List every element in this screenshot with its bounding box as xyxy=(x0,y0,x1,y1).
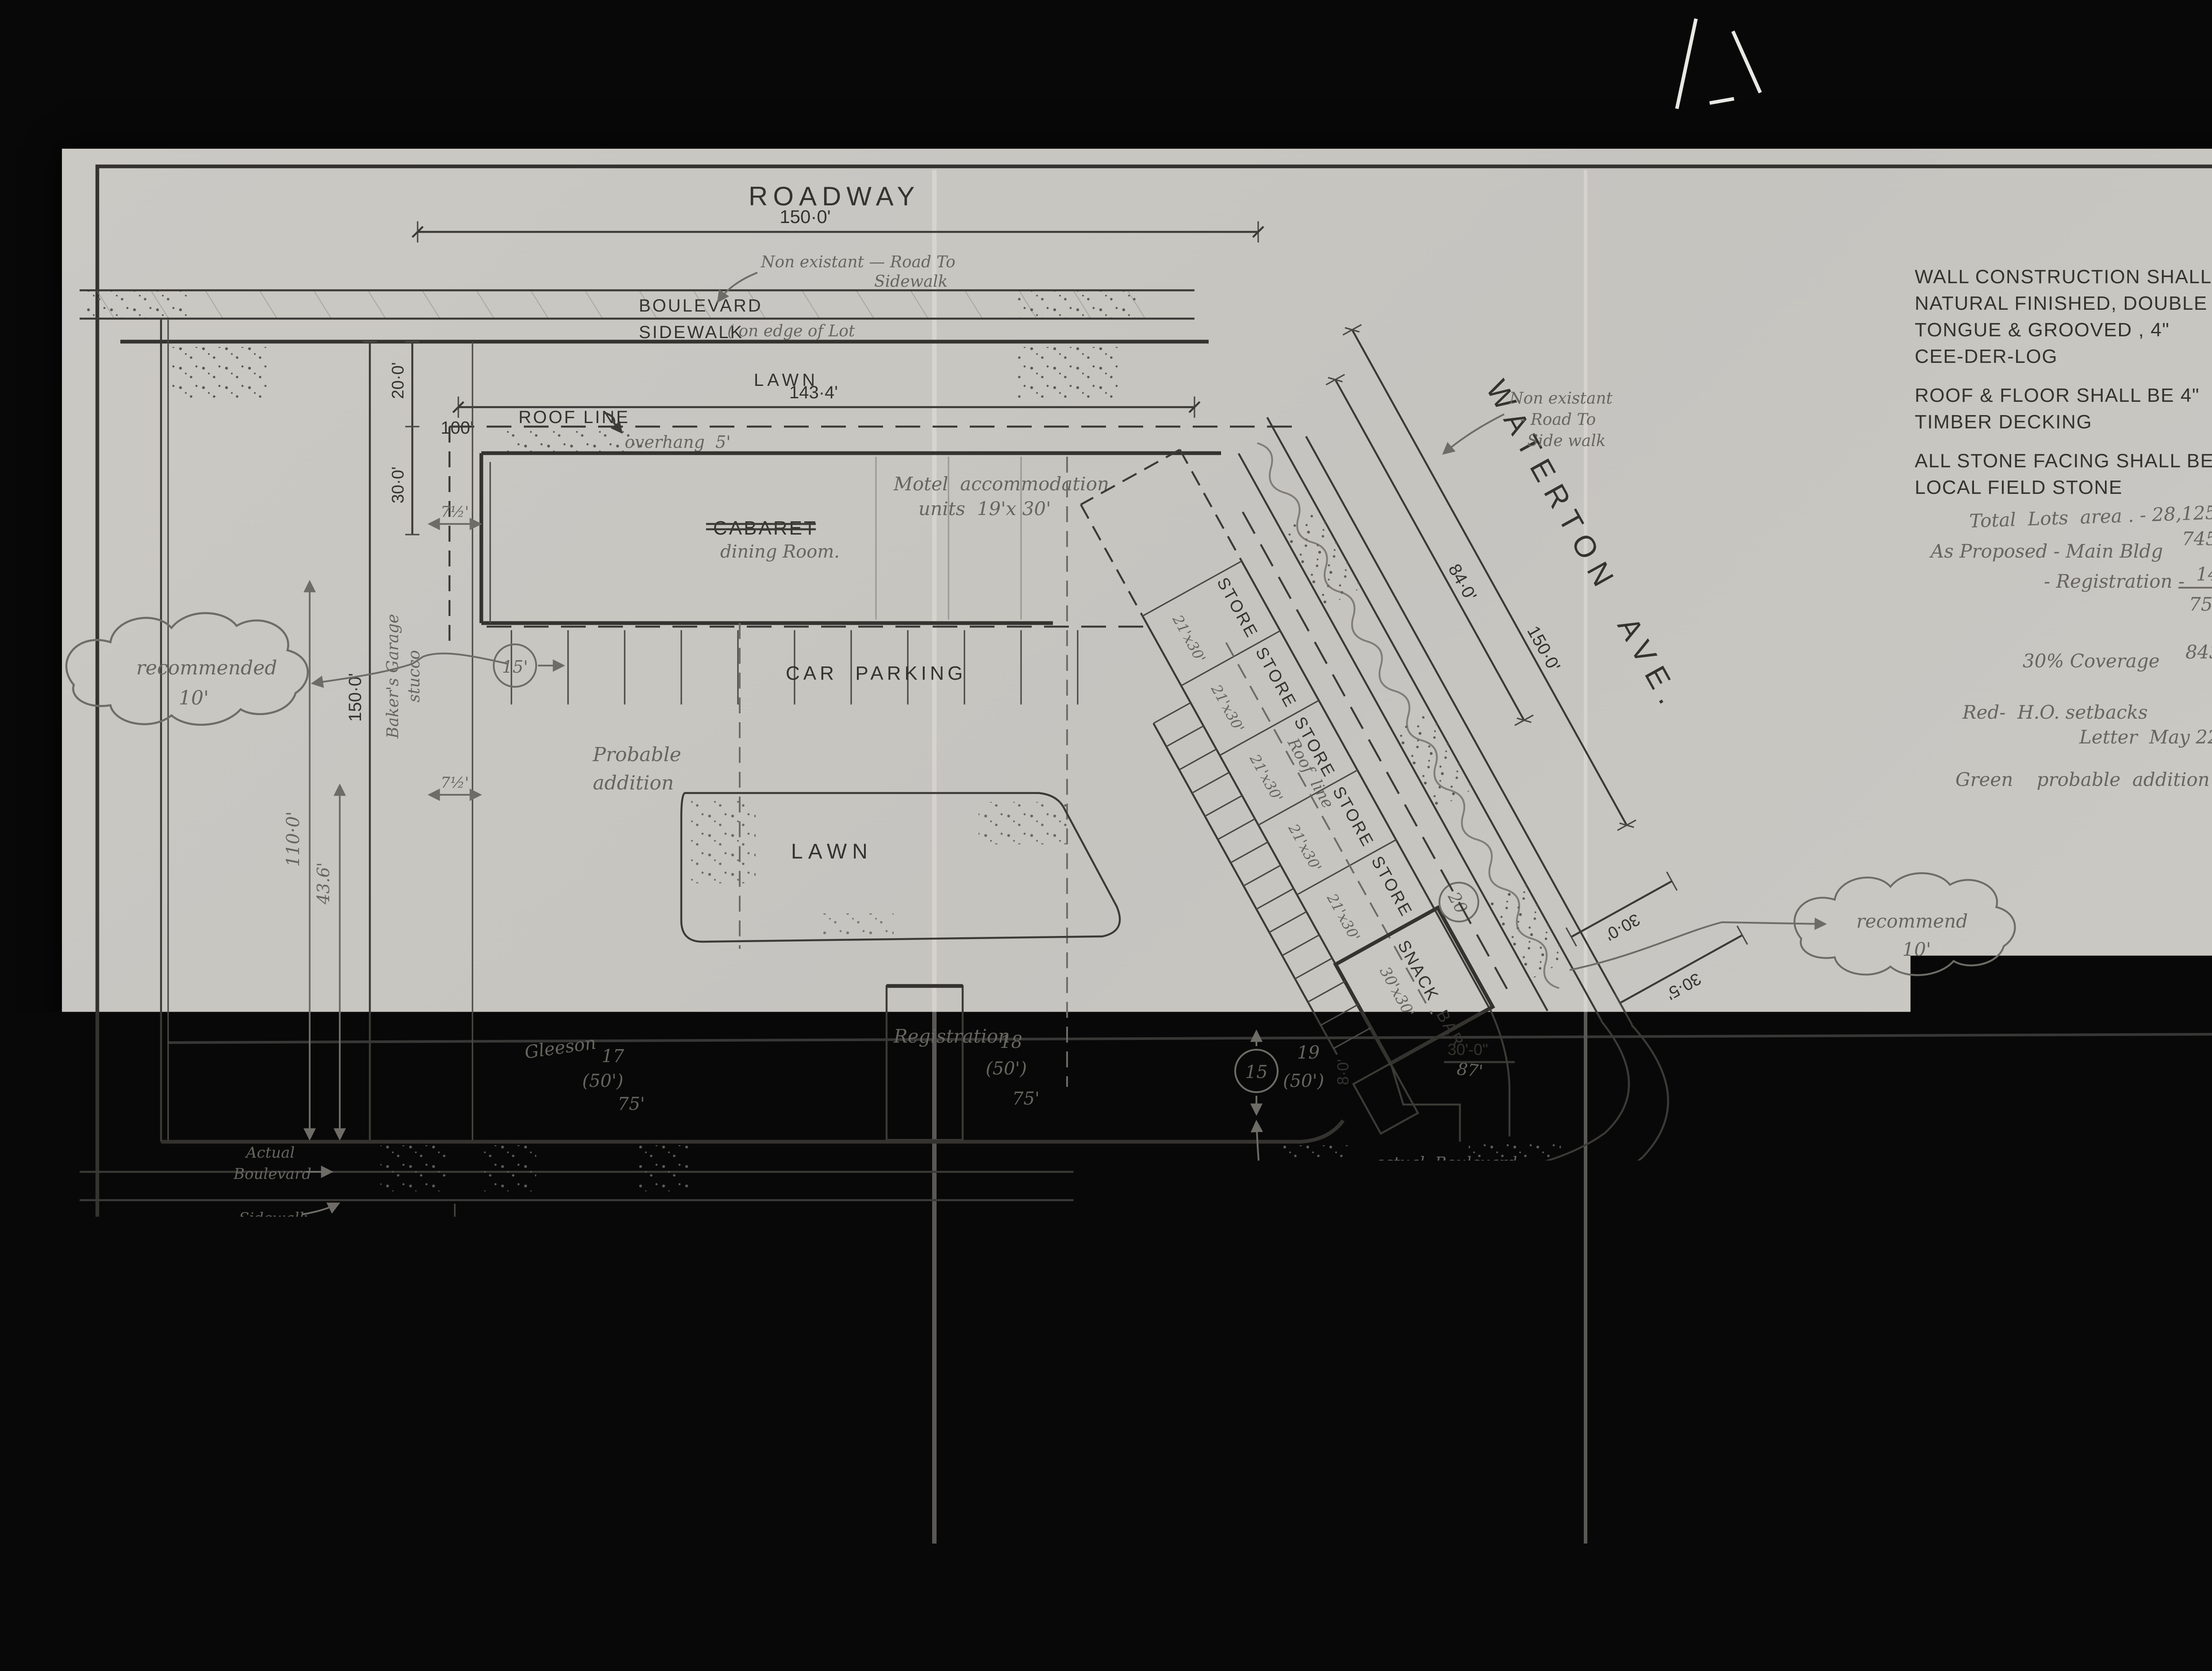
initials-signature xyxy=(2185,1468,2212,1490)
svg-text:ALL STONE FACING SHALL BE: ALL STONE FACING SHALL BE xyxy=(1915,450,2212,472)
svg-text:ROOF & FLOOR SHALL BE 4": ROOF & FLOOR SHALL BE 4" xyxy=(1915,385,2200,406)
store-3-size: 21'x30' xyxy=(1246,751,1286,805)
roadway-dim: 150·0' xyxy=(412,206,1263,243)
svg-text:10': 10' xyxy=(179,687,209,709)
svg-text:- Road To: - Road To xyxy=(1520,411,1596,429)
svg-text:Non existant: Non existant xyxy=(1509,389,1613,408)
dim-20: 20·0' xyxy=(389,362,407,399)
svg-text:144: 144 xyxy=(2196,563,2212,585)
svg-text:recommend: recommend xyxy=(1856,910,1968,932)
svg-text:Green probable addition: Green probable addition xyxy=(1955,769,2210,790)
probable-addition-1: Probable xyxy=(592,743,681,766)
svg-text:SCALE : 1" = 20'-0": SCALE : 1" = 20'-0" xyxy=(941,1387,1109,1408)
store-2-size: 21'x30' xyxy=(1208,681,1248,735)
dim-43-6: 43.6' xyxy=(314,862,333,905)
dim-30: 30·0' xyxy=(389,466,407,503)
svg-text:recommend: recommend xyxy=(1230,1273,1341,1295)
svg-text:CEE-DER-LOG: CEE-DER-LOG xyxy=(1915,346,2058,367)
store-4-size: 21'x30' xyxy=(1285,821,1325,875)
cloud-recommended-10-left: recommended 10' xyxy=(66,613,508,724)
svg-text:recommended: recommended xyxy=(136,657,277,679)
svg-text:10': 10' xyxy=(1902,939,1931,960)
dim-30-0: 30'-0" xyxy=(1448,1040,1488,1059)
svg-text:TIMBER BUILDING: TIMBER BUILDING xyxy=(1835,1298,2112,1328)
dim-30-waterton: 30·0' xyxy=(1601,910,1643,944)
struck-cabaret: CABARET. xyxy=(862,1506,1000,1533)
note-inline-treed: in line with Treed Boulevard Blk II xyxy=(1671,1192,1881,1280)
dim-8: 8·0' xyxy=(1334,1059,1352,1085)
boulevard-band: BOULEVARD xyxy=(80,290,1194,319)
svg-text:8': 8' xyxy=(1279,1303,1296,1325)
svg-text:Red- H.O. setbacks: Red- H.O. setbacks xyxy=(1962,701,2148,723)
actual-boulevard-note: actual Boulevard xyxy=(1375,1154,1517,1172)
probable-addition-2: addition xyxy=(593,772,674,794)
plan-title: PLOT PLAN SCALE : 1" = 20'-0" xyxy=(879,1348,1110,1408)
lot17-owner: Gleeson xyxy=(523,1033,597,1063)
svg-text:Side walk: Side walk xyxy=(1527,432,1606,450)
svg-text:PLOT PLAN: PLOT PLAN xyxy=(885,1348,1072,1380)
store-5-size: 21'x30' xyxy=(1323,890,1363,944)
plot-plan-drawing: ROADWAY 150·0' BOULEVARD SIDEWALK ( on e… xyxy=(62,149,2212,1597)
sidewalk-note: ( on edge of Lot xyxy=(727,322,855,340)
dining-note: dining Room. xyxy=(720,542,840,562)
overhang-note: overhang 5' xyxy=(625,432,731,452)
svg-text:- WATERTON LAKES TOWNSITE: - WATERTON LAKES TOWNSITE . - ALBERTA . xyxy=(1046,1506,1729,1533)
mountview-road: actual Boulevard actual sidewalk 237·0' … xyxy=(80,1021,1668,1332)
svg-text:Boulevard Blk II: Boulevard Blk II xyxy=(1736,1217,1881,1236)
date-note: July 19, 1958 xyxy=(2129,1445,2212,1469)
dim-7half-b: 7½' xyxy=(441,774,469,792)
svg-text:7455 □ approx: 7455 □ approx xyxy=(2182,528,2212,550)
svg-text:TONGUE & GROOVED , 4": TONGUE & GROOVED , 4" xyxy=(1915,319,2170,341)
lot18-width: (50') xyxy=(986,1059,1027,1079)
left-boulevard-note: Boulevard xyxy=(233,1165,311,1183)
lots-blk-note: Lots 17-18-19 Blk III xyxy=(1866,1401,2086,1435)
dim-237: 237·0' xyxy=(947,1240,998,1261)
film-scan-frame: 001679 Parks Canada Parcs Canada RG 84, … xyxy=(0,0,2212,1671)
lawn-label: LAWN xyxy=(791,840,873,863)
film-splice-mark xyxy=(1731,31,1762,93)
svg-text:NATURAL FINISHED, DOUBLE: NATURAL FINISHED, DOUBLE xyxy=(1915,293,2208,314)
circled-20: 20 xyxy=(1444,888,1471,917)
dim-143: 143·4' xyxy=(789,383,838,402)
lot17-width: (50') xyxy=(582,1071,623,1091)
car-parking-label: CAR PARKING xyxy=(786,662,966,684)
motel-note-1: Motel accommodation xyxy=(893,473,1109,495)
file-number: FILE No. 58-241 xyxy=(2118,1505,2212,1531)
svg-text:WALL CONSTRUCTION SHALL BE: WALL CONSTRUCTION SHALL BE xyxy=(1915,266,2212,288)
motel-note-2: units 19'x 30' xyxy=(918,498,1051,520)
svg-text:Total Lots area . - 28,125 □: Total Lots area . - 28,125 □ approx xyxy=(1969,498,2212,532)
svg-text:8437.5 □: 8437.5 □ xyxy=(2185,641,2212,663)
area-calculations: Total Lots area . - 28,125 □ approx As P… xyxy=(1929,498,2212,672)
svg-text:"MARDEL" - STORES , MOTEL: "MARDEL" - STORES , MOTEL & xyxy=(218,1506,705,1533)
circled-15-bottom: 15 xyxy=(1245,1062,1268,1082)
lot19: 19 xyxy=(1297,1043,1320,1063)
lot18: 18 xyxy=(1000,1032,1022,1052)
dim-150-left: 150·0' xyxy=(346,673,365,722)
lawn-area: LAWN xyxy=(681,793,1120,942)
note-non-existant-waterton: Non existant - Road To Side walk xyxy=(1444,389,1613,453)
dim-100: 100' xyxy=(441,418,473,438)
svg-text:Letter May 22 '58: Letter May 22 '58 xyxy=(2079,726,2212,748)
lot18-depth: 75' xyxy=(1012,1089,1040,1109)
svg-text:Non existant — Road To: Non existant — Road To xyxy=(760,253,956,271)
bakers-garage-1: Baker's Garage xyxy=(384,614,402,739)
svg-text:7599: 7599 xyxy=(2189,593,2212,615)
film-splice-mark xyxy=(1709,97,1735,105)
lot17: 17 xyxy=(602,1046,624,1067)
lot19-width: (50') xyxy=(1283,1071,1324,1091)
dim-110: 110·0' xyxy=(283,811,303,867)
svg-text:in line with Treed: in line with Treed xyxy=(1722,1192,1873,1211)
svg-text:As Proposed - Main Bldg: As Proposed - Main Bldg xyxy=(1929,540,2163,562)
client-title-block: TIMBER BUILDING SUPPLIES LTD. CALGARY. A… xyxy=(1828,1298,2212,1490)
svg-text:30% Coverage: 30% Coverage xyxy=(2023,650,2160,672)
svg-text:Sidewalk: Sidewalk xyxy=(874,273,948,291)
lot17-depth: 75' xyxy=(618,1094,645,1114)
boulevard-label: BOULEVARD xyxy=(639,296,763,316)
dining-room-correction: dining Room xyxy=(890,1535,998,1555)
waterton-diagonal: Roof line STORE 21'x30' STORE 21'x30' ST… xyxy=(1031,269,1814,1157)
roadway-label: ROADWAY xyxy=(749,181,920,211)
spec-notes: WALL CONSTRUCTION SHALL BE NATURAL FINIS… xyxy=(1915,266,2212,498)
store-1-size: 21'x30' xyxy=(1169,612,1209,666)
svg-text:150·0': 150·0' xyxy=(780,206,830,227)
svg-text:SUPPLIES LTD.: SUPPLIES LTD. xyxy=(1835,1337,2066,1367)
left-sidewalk-note: Sidewalk xyxy=(239,1209,308,1227)
actual-sidewalk-note: actual sidewalk xyxy=(1407,1182,1537,1201)
svg-text:- Registration -: - Registration - xyxy=(2044,570,2185,592)
left-actual-note: Actual xyxy=(245,1144,295,1162)
main-building: Motel accommodation units 19'x 30' CABAR… xyxy=(481,453,1221,623)
film-splice-mark xyxy=(1675,18,1697,109)
dim-7half-a: 7½' xyxy=(441,503,469,521)
drawing-sheet: ROADWAY 150·0' BOULEVARD SIDEWALK ( on e… xyxy=(62,149,2212,1597)
svg-text:CALGARY. ALTA.: CALGARY. ALTA. xyxy=(1835,1376,2082,1406)
cabaret-label: CABARET xyxy=(713,517,818,539)
sidewalk-band: SIDEWALK ( on edge of Lot xyxy=(120,322,1209,342)
svg-text:LOCAL FIELD STONE: LOCAL FIELD STONE xyxy=(1915,477,2123,498)
dim-30-5: 30·5' xyxy=(1663,969,1704,1003)
circled-15-left: 15' xyxy=(502,657,528,677)
registration-label: Registration xyxy=(893,1025,1010,1047)
colour-legend-notes: Red- H.O. setbacks Letter May 22 '58 Gre… xyxy=(1955,701,2212,790)
svg-text:TIMBER DECKING: TIMBER DECKING xyxy=(1915,411,2092,433)
dim-84: 84·0' xyxy=(1444,561,1480,604)
mountview-label: MOUNTVIEW ROAD xyxy=(756,1302,1118,1332)
parking-aisle-dim: 15' xyxy=(494,644,563,687)
west-lot-lines xyxy=(161,319,472,1142)
